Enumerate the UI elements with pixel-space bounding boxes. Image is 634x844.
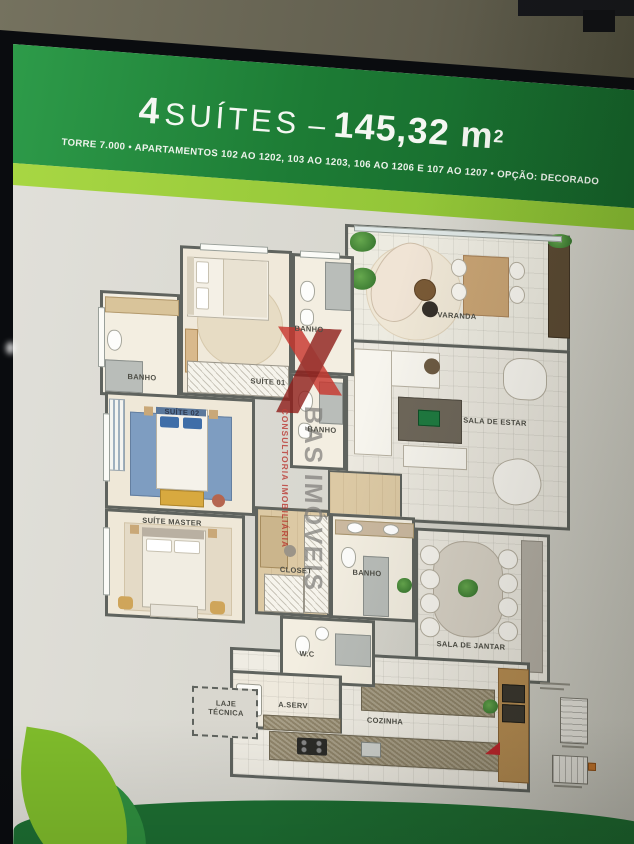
suite02-curtain [109,398,125,471]
key-plan-caption [540,682,570,686]
suite01-duvet [223,259,267,317]
window [103,413,110,481]
master-pillow [146,538,172,552]
room-label-suite01: SUÍTE 01 [251,376,286,387]
estar-sofa-left [354,348,392,456]
room-label-suite02: SUÍTE 02 [165,407,200,418]
title-area-sup: 2 [493,126,504,147]
varanda-coffee-table [422,301,438,318]
master-pillow [174,540,200,554]
banho-esq-toilet [107,329,122,351]
jantar-chair [498,573,518,594]
room-label-banho-esq: BANHO [128,372,157,383]
varanda-glass-rail [354,225,562,242]
apartment-floorplan: VARANDA SALA DE ESTAR SALA DE JANTAR COZ… [100,205,616,832]
realtor-watermark: CONSULTORIA IMOBILIÁRIA BAS IMÓVEIS [272,326,358,576]
banho-suite01-shower [325,262,351,311]
master-nightstand [208,529,217,538]
room-label-banho-suite01: BANHO [295,324,324,335]
varanda-side-table [414,278,436,301]
room-label-closet: CLOSET [280,565,312,576]
key-plan-highlight [588,763,596,771]
jantar-chair [498,549,518,570]
cozinha-island [361,683,495,718]
cozinha-sink [361,742,381,758]
room-varanda [345,224,570,354]
varanda-chair [509,285,525,304]
suite01-pillow [196,287,209,310]
room-banho-esq [100,290,180,399]
wall-mount-bracket-stub [583,10,615,32]
key-plan-building [560,697,588,744]
suite02-nightstand [209,410,218,419]
cozinha-cooktop [297,737,327,756]
master-pouf [210,601,225,615]
varanda-plant [350,231,376,252]
room-label-wc: W.C [299,649,314,659]
suite01-pillow [196,261,209,284]
cozinha-oven [502,684,525,703]
jantar-chair [498,597,518,618]
key-plan-caption [562,745,584,748]
suite02-bench [160,489,204,507]
master-bench [150,604,198,620]
wc-sink [315,626,329,641]
photo-of-floorplan-display: 4 SUÍTES – 145,32 m2 TORRE 7.000 • APART… [0,0,634,844]
estar-tv-screen [418,410,440,427]
varanda-chair [451,282,467,301]
watermark-tagline: CONSULTORIA IMOBILIÁRIA [280,408,290,584]
key-plan-caption [554,785,582,788]
master-pouf [118,596,133,610]
display-screen-bezel: 4 SUÍTES – 145,32 m2 TORRE 7.000 • APART… [0,0,634,844]
banho-master-plant [397,578,412,594]
cozinha-plant [483,699,498,714]
jantar-chair [420,593,440,614]
suite02-nightstand [144,406,153,415]
suite02-pouf [212,494,225,508]
room-label-laje-tecnica: LAJE TÉCNICA [197,698,255,718]
banho-suite01-toilet [300,280,315,302]
window [98,307,105,367]
jantar-chair [420,569,440,590]
window [103,527,110,595]
wc-shower [335,633,371,667]
realtor-logo-icon [272,326,346,416]
key-plan-building [552,755,588,785]
banho-master-sink [383,524,399,536]
suite01-bed-headboard [187,257,194,315]
jantar-chair [498,621,518,642]
title-suite-count: 4 [137,89,162,131]
estar-sofa-bottom [403,445,467,470]
title-suites-word: SUÍTES [163,96,301,141]
varanda-gourmet-counter [548,243,570,338]
jantar-chair [420,545,440,566]
room-label-banho-suite02: BANHO [308,424,337,435]
suite02-pillow [183,417,202,429]
varanda-chair [451,258,467,277]
key-plan-caption [540,687,564,690]
estar-side-table [424,358,440,375]
screen-glare [6,342,15,354]
floorplan-poster: 4 SUÍTES – 145,32 m2 TORRE 7.000 • APART… [13,0,634,844]
title-separator: – [303,108,330,143]
site-key-plan [538,680,614,796]
room-label-cozinha: COZINHA [367,715,403,726]
banho-esq-vanity [105,296,179,316]
jantar-chair [420,617,440,638]
banho-master-shower [363,556,389,617]
room-label-banho-master: BANHO [353,568,382,579]
estar-armchair-right [488,454,546,509]
cozinha-oven [502,704,525,723]
red-marker-triangle [485,741,500,755]
suite02-pillow [160,416,179,428]
varanda-dining-table [463,255,509,317]
varanda-chair [509,261,525,280]
estar-armchair [503,357,547,401]
jantar-buffet [521,540,543,673]
room-label-aserv: A.SERV [278,700,308,711]
master-nightstand [130,525,139,534]
wall-mount-bracket [518,0,634,16]
